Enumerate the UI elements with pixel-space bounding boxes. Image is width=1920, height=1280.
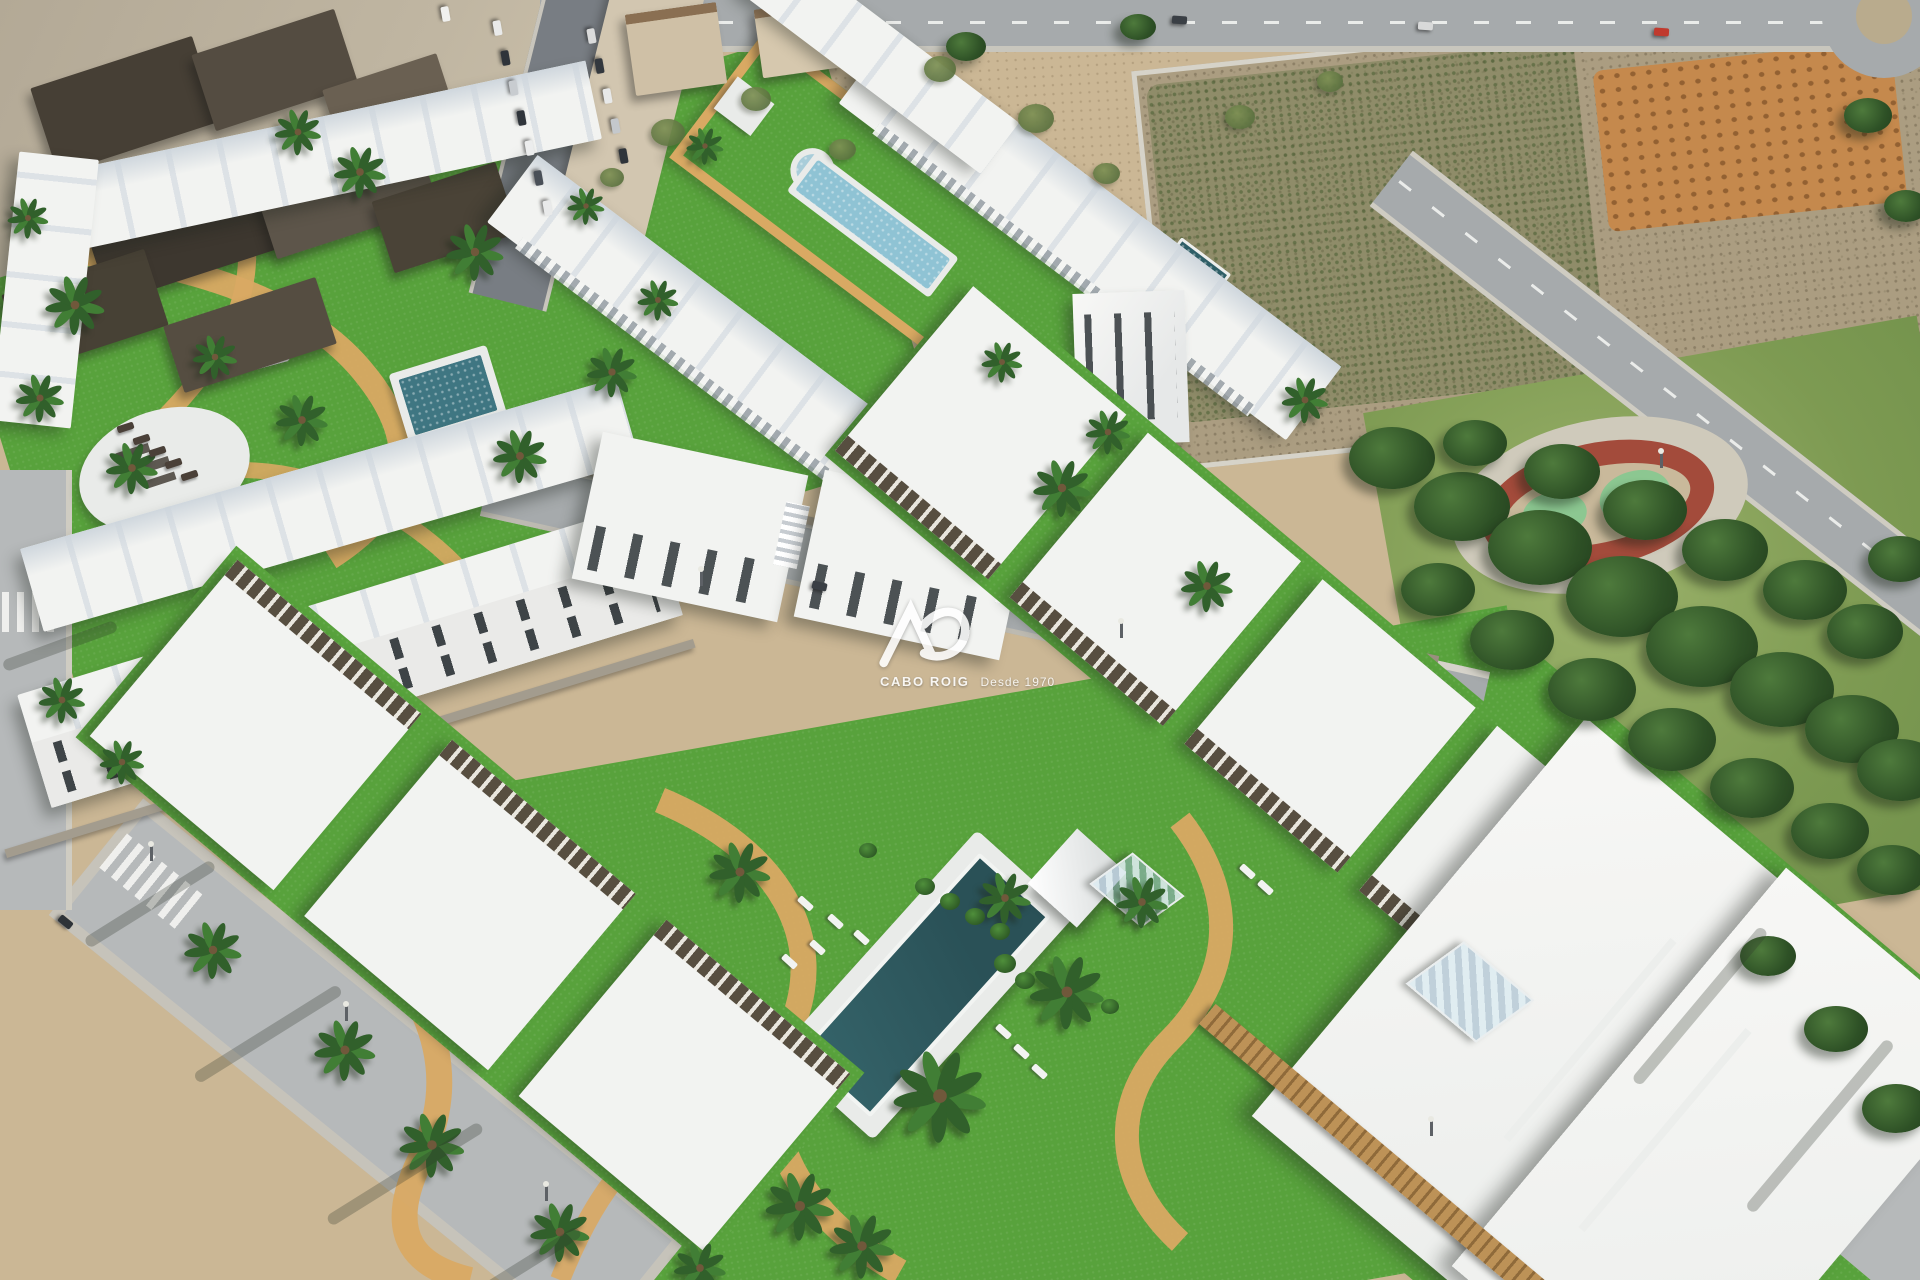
palm-tree — [980, 340, 1024, 384]
tree — [1443, 420, 1507, 466]
street-lamp — [1120, 622, 1123, 638]
tree — [1884, 190, 1920, 222]
palm-tree — [273, 107, 323, 157]
tree — [1401, 563, 1475, 616]
palm-tree — [977, 870, 1033, 926]
palm-tree — [6, 196, 50, 240]
pool-planter — [1015, 972, 1035, 989]
tree — [1349, 427, 1435, 489]
shrub — [1317, 71, 1343, 92]
tree — [1628, 708, 1716, 771]
palm-tree — [191, 333, 239, 381]
shrub — [600, 168, 624, 187]
tree — [1710, 758, 1794, 818]
palm-tree — [444, 221, 506, 283]
parked-car — [1172, 15, 1188, 24]
palm-tree — [1179, 558, 1235, 614]
watermark-tagline: Desde 1970 — [981, 675, 1056, 689]
pool-planter — [915, 878, 935, 895]
tree — [1682, 519, 1768, 581]
tree — [1844, 98, 1892, 133]
palm-tree — [636, 278, 680, 322]
street-lamp — [700, 570, 703, 586]
tree — [946, 32, 986, 61]
cabo-roig-logo-icon — [876, 598, 976, 672]
town-beige-building — [625, 2, 728, 96]
tree — [1120, 14, 1156, 40]
pool-planter — [940, 893, 960, 910]
palm-tree — [43, 273, 107, 337]
palm-tree — [890, 1046, 990, 1146]
street-lamp — [345, 1005, 348, 1021]
palm-tree — [1280, 375, 1330, 425]
palm-tree — [491, 427, 549, 485]
palm-tree — [274, 392, 330, 448]
pool-planter — [990, 923, 1010, 940]
tree — [1857, 845, 1920, 895]
shrub — [651, 119, 685, 146]
palm-tree — [312, 1017, 378, 1083]
palm-tree — [685, 126, 725, 166]
pool-planter — [994, 954, 1016, 973]
aerial-render-scene: CABO ROIG Desde 1970 — [0, 0, 1920, 1280]
tree — [1827, 604, 1903, 659]
palm-tree — [1114, 874, 1170, 930]
parked-car — [1654, 27, 1670, 36]
palm-tree — [707, 839, 773, 905]
tree — [1470, 610, 1554, 670]
palm-tree — [1027, 952, 1107, 1032]
watermark: CABO ROIG Desde 1970 — [876, 598, 1106, 702]
palm-tree — [104, 440, 160, 496]
tree — [1524, 444, 1600, 499]
shrub — [924, 56, 956, 82]
shrub — [829, 139, 856, 161]
tree — [1791, 803, 1869, 859]
watermark-text: CABO ROIG Desde 1970 — [880, 674, 1055, 689]
shrub — [741, 87, 771, 111]
pool-planter — [965, 908, 985, 925]
street-lamp — [1660, 452, 1663, 468]
palm-tree — [763, 1169, 837, 1243]
palm-tree — [332, 144, 388, 200]
tree — [1763, 560, 1847, 620]
shrub — [1225, 105, 1255, 129]
palm-tree — [827, 1211, 897, 1280]
street-lamp — [545, 1185, 548, 1201]
street-lamp — [1430, 1120, 1433, 1136]
watermark-brand: CABO ROIG — [880, 674, 970, 689]
palm-tree — [1084, 408, 1132, 456]
tree — [1603, 480, 1687, 540]
palm-tree — [672, 1240, 728, 1280]
palm-tree — [585, 345, 639, 399]
tree — [1804, 1006, 1868, 1052]
shrub — [1093, 163, 1120, 185]
shrub — [1018, 104, 1054, 133]
palm-tree — [98, 738, 146, 786]
parked-car — [1418, 21, 1434, 30]
lap-pool-water — [795, 159, 950, 289]
tree — [1862, 1084, 1920, 1133]
palm-tree — [1031, 457, 1093, 519]
palm-tree — [182, 919, 244, 981]
palm-tree — [566, 186, 606, 226]
palm-tree — [37, 675, 87, 725]
street-lamp — [150, 845, 153, 861]
tree — [1548, 658, 1636, 721]
palm-tree — [14, 372, 66, 424]
